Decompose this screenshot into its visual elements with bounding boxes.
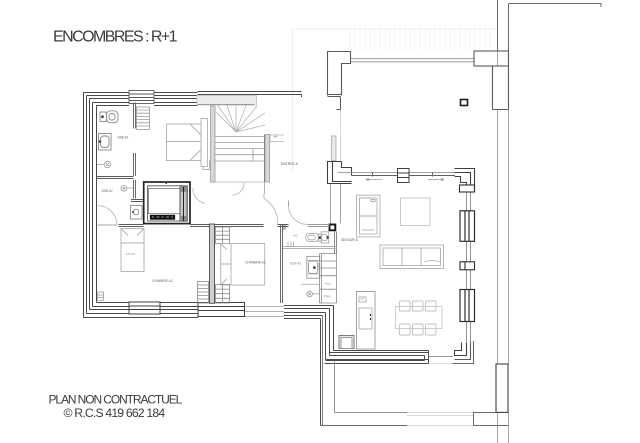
- svg-text:SDB A2: SDB A2: [102, 189, 113, 193]
- svg-text:WC: WC: [293, 234, 299, 238]
- svg-text:CHAMBRE A2: CHAMBRE A2: [152, 279, 173, 283]
- svg-text:ENCOMBRES : R+1: ENCOMBRES : R+1: [53, 29, 178, 46]
- svg-text:Frigo: Frigo: [324, 294, 331, 298]
- svg-text:LIT A2: LIT A2: [126, 252, 135, 256]
- svg-text:Four: Four: [325, 282, 331, 286]
- svg-text:SDB A1: SDB A1: [118, 136, 129, 140]
- svg-text:PLAN NON CONTRACTUEL: PLAN NON CONTRACTUEL: [49, 393, 183, 407]
- svg-text:© R.C.S 419 662 184: © R.C.S 419 662 184: [64, 406, 166, 420]
- svg-text:LP: LP: [361, 297, 364, 301]
- svg-text:ENTREE A: ENTREE A: [281, 162, 299, 166]
- svg-text:SDB A3: SDB A3: [290, 262, 301, 266]
- svg-text:CHAMBRE A3: CHAMBRE A3: [245, 261, 266, 265]
- svg-text:SEJOUR A: SEJOUR A: [341, 238, 359, 242]
